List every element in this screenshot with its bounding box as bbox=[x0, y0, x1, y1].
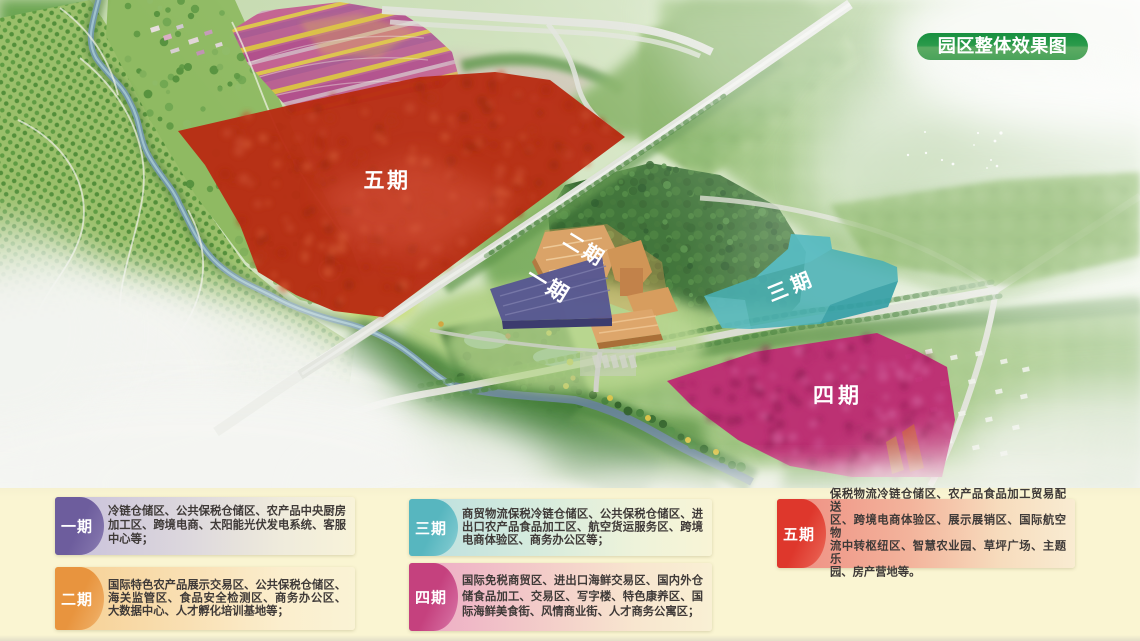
svg-text:四期: 四期 bbox=[813, 385, 863, 408]
svg-text:五期: 五期 bbox=[364, 170, 411, 193]
